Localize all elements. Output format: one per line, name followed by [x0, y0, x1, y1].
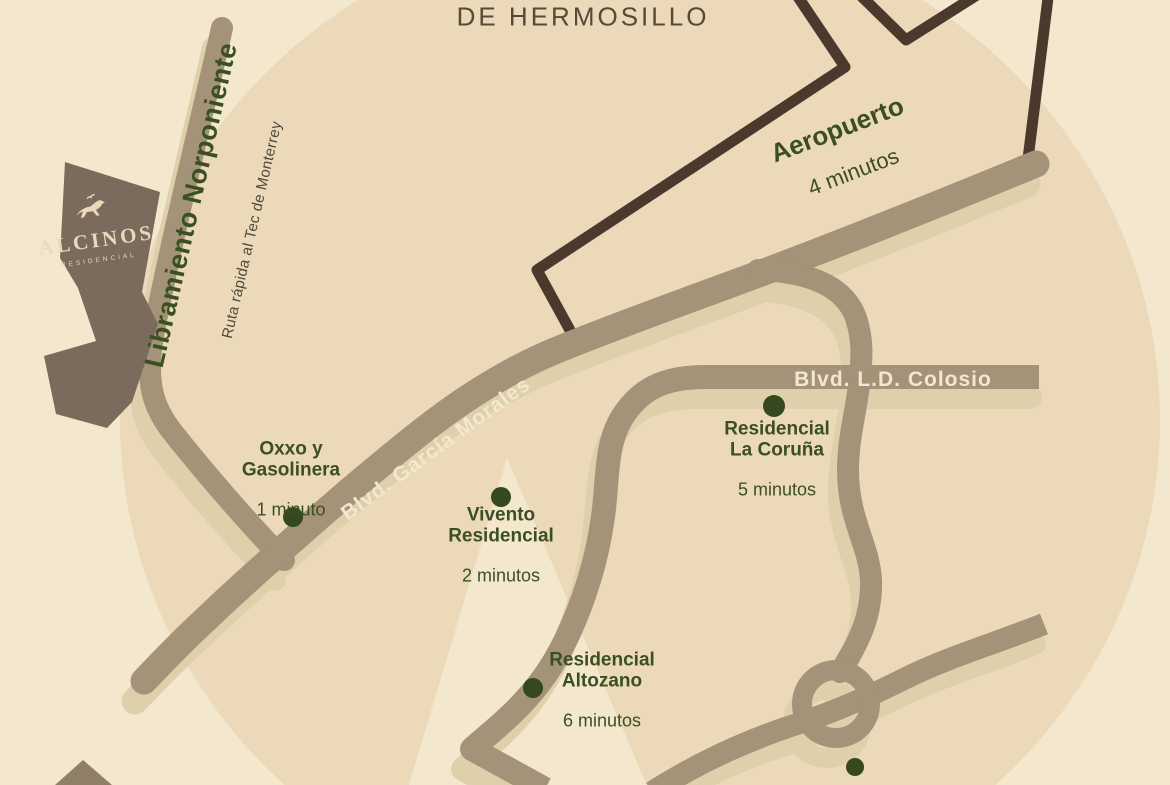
poi-time: 5 minutos: [724, 480, 830, 500]
poi-time: 2 minutos: [448, 566, 554, 586]
map-title: DE HERMOSILLO: [457, 2, 710, 31]
poi-name: Vivento Residencial: [448, 504, 554, 547]
poi-time: 6 minutos: [549, 711, 655, 731]
poi-altozano: Residencial Altozano 6 minutos: [549, 631, 655, 748]
marker-altozano: [523, 678, 543, 698]
poi-oxxo: Oxxo y Gasolinera 1 minuto: [242, 420, 340, 537]
poi-name: Residencial La Coruña: [724, 418, 830, 461]
poi-name: Residencial Altozano: [549, 649, 655, 692]
poi-la-coruna: Residencial La Coruña 5 minutos: [724, 400, 830, 517]
road-label-colosio: Blvd. L.D. Colosio: [794, 368, 992, 392]
poi-time: 1 minuto: [242, 500, 340, 520]
location-map: ALCINOS RESIDENCIAL DE HERMOSILLO Libram…: [0, 0, 1170, 785]
poi-vivento: Vivento Residencial 2 minutos: [448, 486, 554, 603]
marker-south: [846, 758, 864, 776]
poi-name: Oxxo y Gasolinera: [242, 438, 340, 481]
